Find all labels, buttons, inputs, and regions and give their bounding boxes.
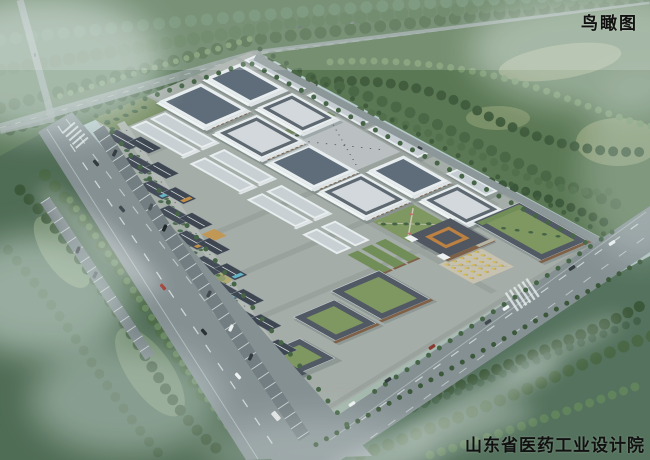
view-title: 鸟瞰图 bbox=[581, 9, 638, 34]
studio-credit: 山东省医药工业设计院 bbox=[465, 431, 645, 456]
birdseye-scene bbox=[0, 0, 650, 460]
color-cast bbox=[0, 0, 650, 460]
aerial-rendering: 鸟瞰图 山东省医药工业设计院 bbox=[0, 0, 650, 460]
